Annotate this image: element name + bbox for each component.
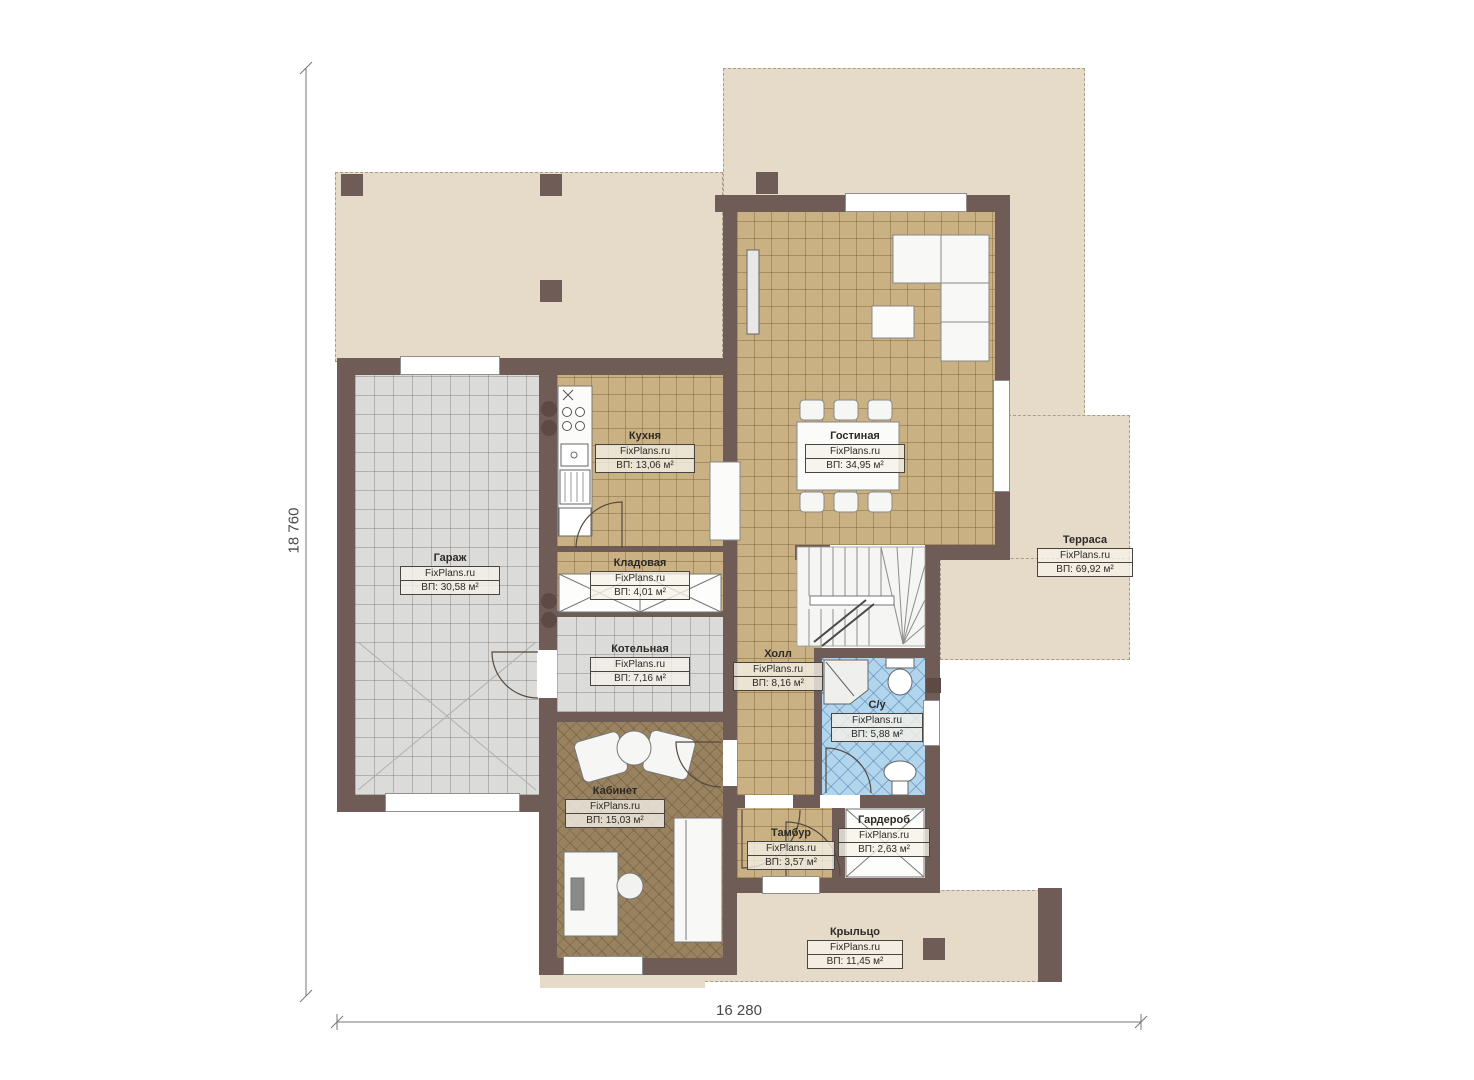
room-info-box: FixPlans.ru ВП: 8,16 м²: [733, 662, 823, 691]
room-watermark: FixPlans.ru: [596, 445, 694, 459]
room-area: ВП: 5,88 м²: [832, 728, 922, 741]
room-watermark: FixPlans.ru: [591, 572, 689, 586]
room-name: Котельная: [590, 643, 690, 656]
room-info-box: FixPlans.ru ВП: 11,45 м²: [807, 940, 903, 969]
room-info-box: FixPlans.ru ВП: 5,88 м²: [831, 713, 923, 742]
room-watermark: FixPlans.ru: [806, 445, 904, 459]
room-label-porch: Крыльцо FixPlans.ru ВП: 11,45 м²: [807, 926, 903, 969]
room-area: ВП: 69,92 м²: [1038, 563, 1132, 576]
stairs: [797, 547, 925, 646]
room-label-office: Кабинет FixPlans.ru ВП: 15,03 м²: [565, 785, 665, 828]
room-info-box: FixPlans.ru ВП: 30,58 м²: [400, 566, 500, 595]
room-watermark: FixPlans.ru: [832, 714, 922, 728]
room-label-tambour: Тамбур FixPlans.ru ВП: 3,57 м²: [747, 827, 835, 870]
plan-linework: [0, 0, 1474, 1080]
room-label-wardrobe: Гардероб FixPlans.ru ВП: 2,63 м²: [838, 814, 930, 857]
room-watermark: FixPlans.ru: [748, 842, 834, 856]
room-area: ВП: 34,95 м²: [806, 459, 904, 472]
room-label-boiler: Котельная FixPlans.ru ВП: 7,16 м²: [590, 643, 690, 686]
kitchen-appliances: [558, 386, 592, 536]
room-label-hall: Холл FixPlans.ru ВП: 8,16 м²: [733, 648, 823, 691]
room-watermark: FixPlans.ru: [734, 663, 822, 677]
room-area: ВП: 8,16 м²: [734, 677, 822, 690]
office-furniture: [564, 729, 722, 942]
room-info-box: FixPlans.ru ВП: 7,16 м²: [590, 657, 690, 686]
room-label-kitchen: Кухня FixPlans.ru ВП: 13,06 м²: [595, 430, 695, 473]
room-info-box: FixPlans.ru ВП: 69,92 м²: [1037, 548, 1133, 577]
room-name: Гараж: [400, 552, 500, 565]
room-name: Гостиная: [805, 430, 905, 443]
dimension-lines: [300, 62, 1147, 1030]
room-label-garage: Гараж FixPlans.ru ВП: 30,58 м²: [400, 552, 500, 595]
room-area: ВП: 11,45 м²: [808, 955, 902, 968]
room-watermark: FixPlans.ru: [1038, 549, 1132, 563]
room-watermark: FixPlans.ru: [566, 800, 664, 814]
room-watermark: FixPlans.ru: [839, 829, 929, 843]
room-name: Гардероб: [838, 814, 930, 827]
room-label-living: Гостиная FixPlans.ru ВП: 34,95 м²: [805, 430, 905, 473]
room-area: ВП: 3,57 м²: [748, 856, 834, 869]
garage-cross: [358, 642, 536, 790]
room-area: ВП: 2,63 м²: [839, 843, 929, 856]
room-watermark: FixPlans.ru: [591, 658, 689, 672]
room-watermark: FixPlans.ru: [401, 567, 499, 581]
room-watermark: FixPlans.ru: [808, 941, 902, 955]
dimension-width: 16 280: [689, 1002, 789, 1019]
room-name: Кухня: [595, 430, 695, 443]
room-info-box: FixPlans.ru ВП: 3,57 м²: [747, 841, 835, 870]
room-area: ВП: 15,03 м²: [566, 814, 664, 827]
room-info-box: FixPlans.ru ВП: 15,03 м²: [565, 799, 665, 828]
room-name: Крыльцо: [807, 926, 903, 939]
room-info-box: FixPlans.ru ВП: 2,63 м²: [838, 828, 930, 857]
room-name: Кладовая: [590, 557, 690, 570]
room-name: С/у: [831, 699, 923, 712]
room-info-box: FixPlans.ru ВП: 34,95 м²: [805, 444, 905, 473]
room-label-terrace: Терраса FixPlans.ru ВП: 69,92 м²: [1037, 534, 1133, 577]
room-label-wc: С/у FixPlans.ru ВП: 5,88 м²: [831, 699, 923, 742]
dimension-height: 18 760: [286, 495, 303, 567]
room-area: ВП: 13,06 м²: [596, 459, 694, 472]
room-info-box: FixPlans.ru ВП: 4,01 м²: [590, 571, 690, 600]
room-label-storage: Кладовая FixPlans.ru ВП: 4,01 м²: [590, 557, 690, 600]
room-info-box: FixPlans.ru ВП: 13,06 м²: [595, 444, 695, 473]
room-area: ВП: 30,58 м²: [401, 581, 499, 594]
room-name: Кабинет: [565, 785, 665, 798]
bathroom-door-arc: [826, 748, 871, 793]
living-room-furniture: [710, 235, 989, 540]
room-area: ВП: 7,16 м²: [591, 672, 689, 685]
floor-plan: Гараж FixPlans.ru ВП: 30,58 м² Кухня Fix…: [0, 0, 1474, 1080]
room-name: Холл: [733, 648, 823, 661]
room-name: Тамбур: [747, 827, 835, 840]
room-name: Терраса: [1037, 534, 1133, 547]
room-area: ВП: 4,01 м²: [591, 586, 689, 599]
